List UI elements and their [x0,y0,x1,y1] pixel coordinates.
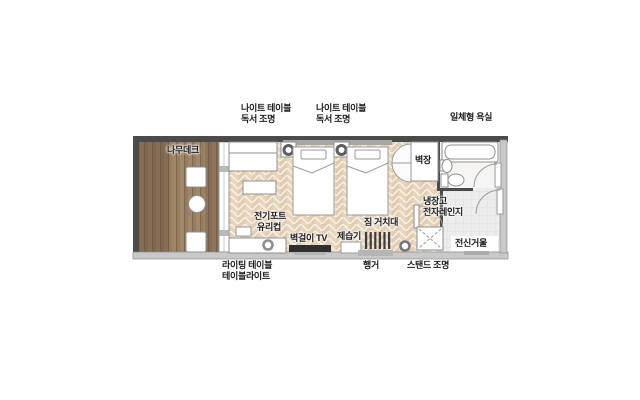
deck-chair-top [186,167,206,187]
label-writing-table: 라이팅 테이블 테이블라이트 [222,260,272,281]
window-divider-top [220,166,229,172]
reading-lamp-2-icon [337,146,346,155]
label-dehumidifier: 제습기 [337,231,361,242]
label-night-table-1: 나이트 테이블 독서 조명 [241,103,291,124]
bathroom-door-leaf [495,163,501,187]
writing-table [229,238,286,253]
floor-plan [0,0,640,400]
label-deck: 나무데크 [167,145,199,156]
label-bathroom: 일체형 욕실 [450,112,492,123]
wall-bathroom-bottom [437,188,473,191]
label-tv: 벽걸이 TV [290,233,327,244]
toilet [441,174,464,187]
label-luggage-rack: 짐 거치대 [364,217,398,228]
tv [289,245,331,252]
bed-2 [347,147,388,215]
entrance-door-leaf [497,189,503,214]
label-mirror: 전신거울 [455,238,487,249]
reading-lamp-1-icon [284,146,293,155]
deck-window [219,142,229,252]
bathtub [442,142,498,162]
sink [440,160,452,173]
electric-kettle [236,227,251,236]
fridge-microwave-cabinet [417,227,443,250]
sofa [229,142,277,171]
stand-lamp-icon [401,242,410,251]
label-stand-lamp: 스탠드 조명 [407,260,449,271]
wall-left [133,136,139,259]
coffee-table [243,181,276,194]
label-fridge-microwave: 냉장고 전자레인지 [423,196,463,217]
label-night-table-2: 나이트 테이블 독서 조명 [316,103,366,124]
deck-chair-bottom [186,232,206,252]
kitchenette-door-leaf [414,205,419,228]
deck-floor-edge-strip [205,142,219,252]
deck-table [189,196,206,213]
deck-floor-dark-strip [139,142,169,252]
label-hanger: 행거 [363,260,379,271]
hanger [358,250,393,256]
table-lamp-icon [264,241,273,250]
bed-1 [293,147,334,215]
label-closet: 벽장 [415,155,431,166]
window-divider-bottom [220,230,229,236]
full-length-mirror [464,251,489,255]
floor-plan-page: 나이트 테이블 독서 조명 나이트 테이블 독서 조명 일체형 욕실 나무데크 … [0,0,640,400]
label-kettle: 전기포트 유리컵 [254,211,286,232]
